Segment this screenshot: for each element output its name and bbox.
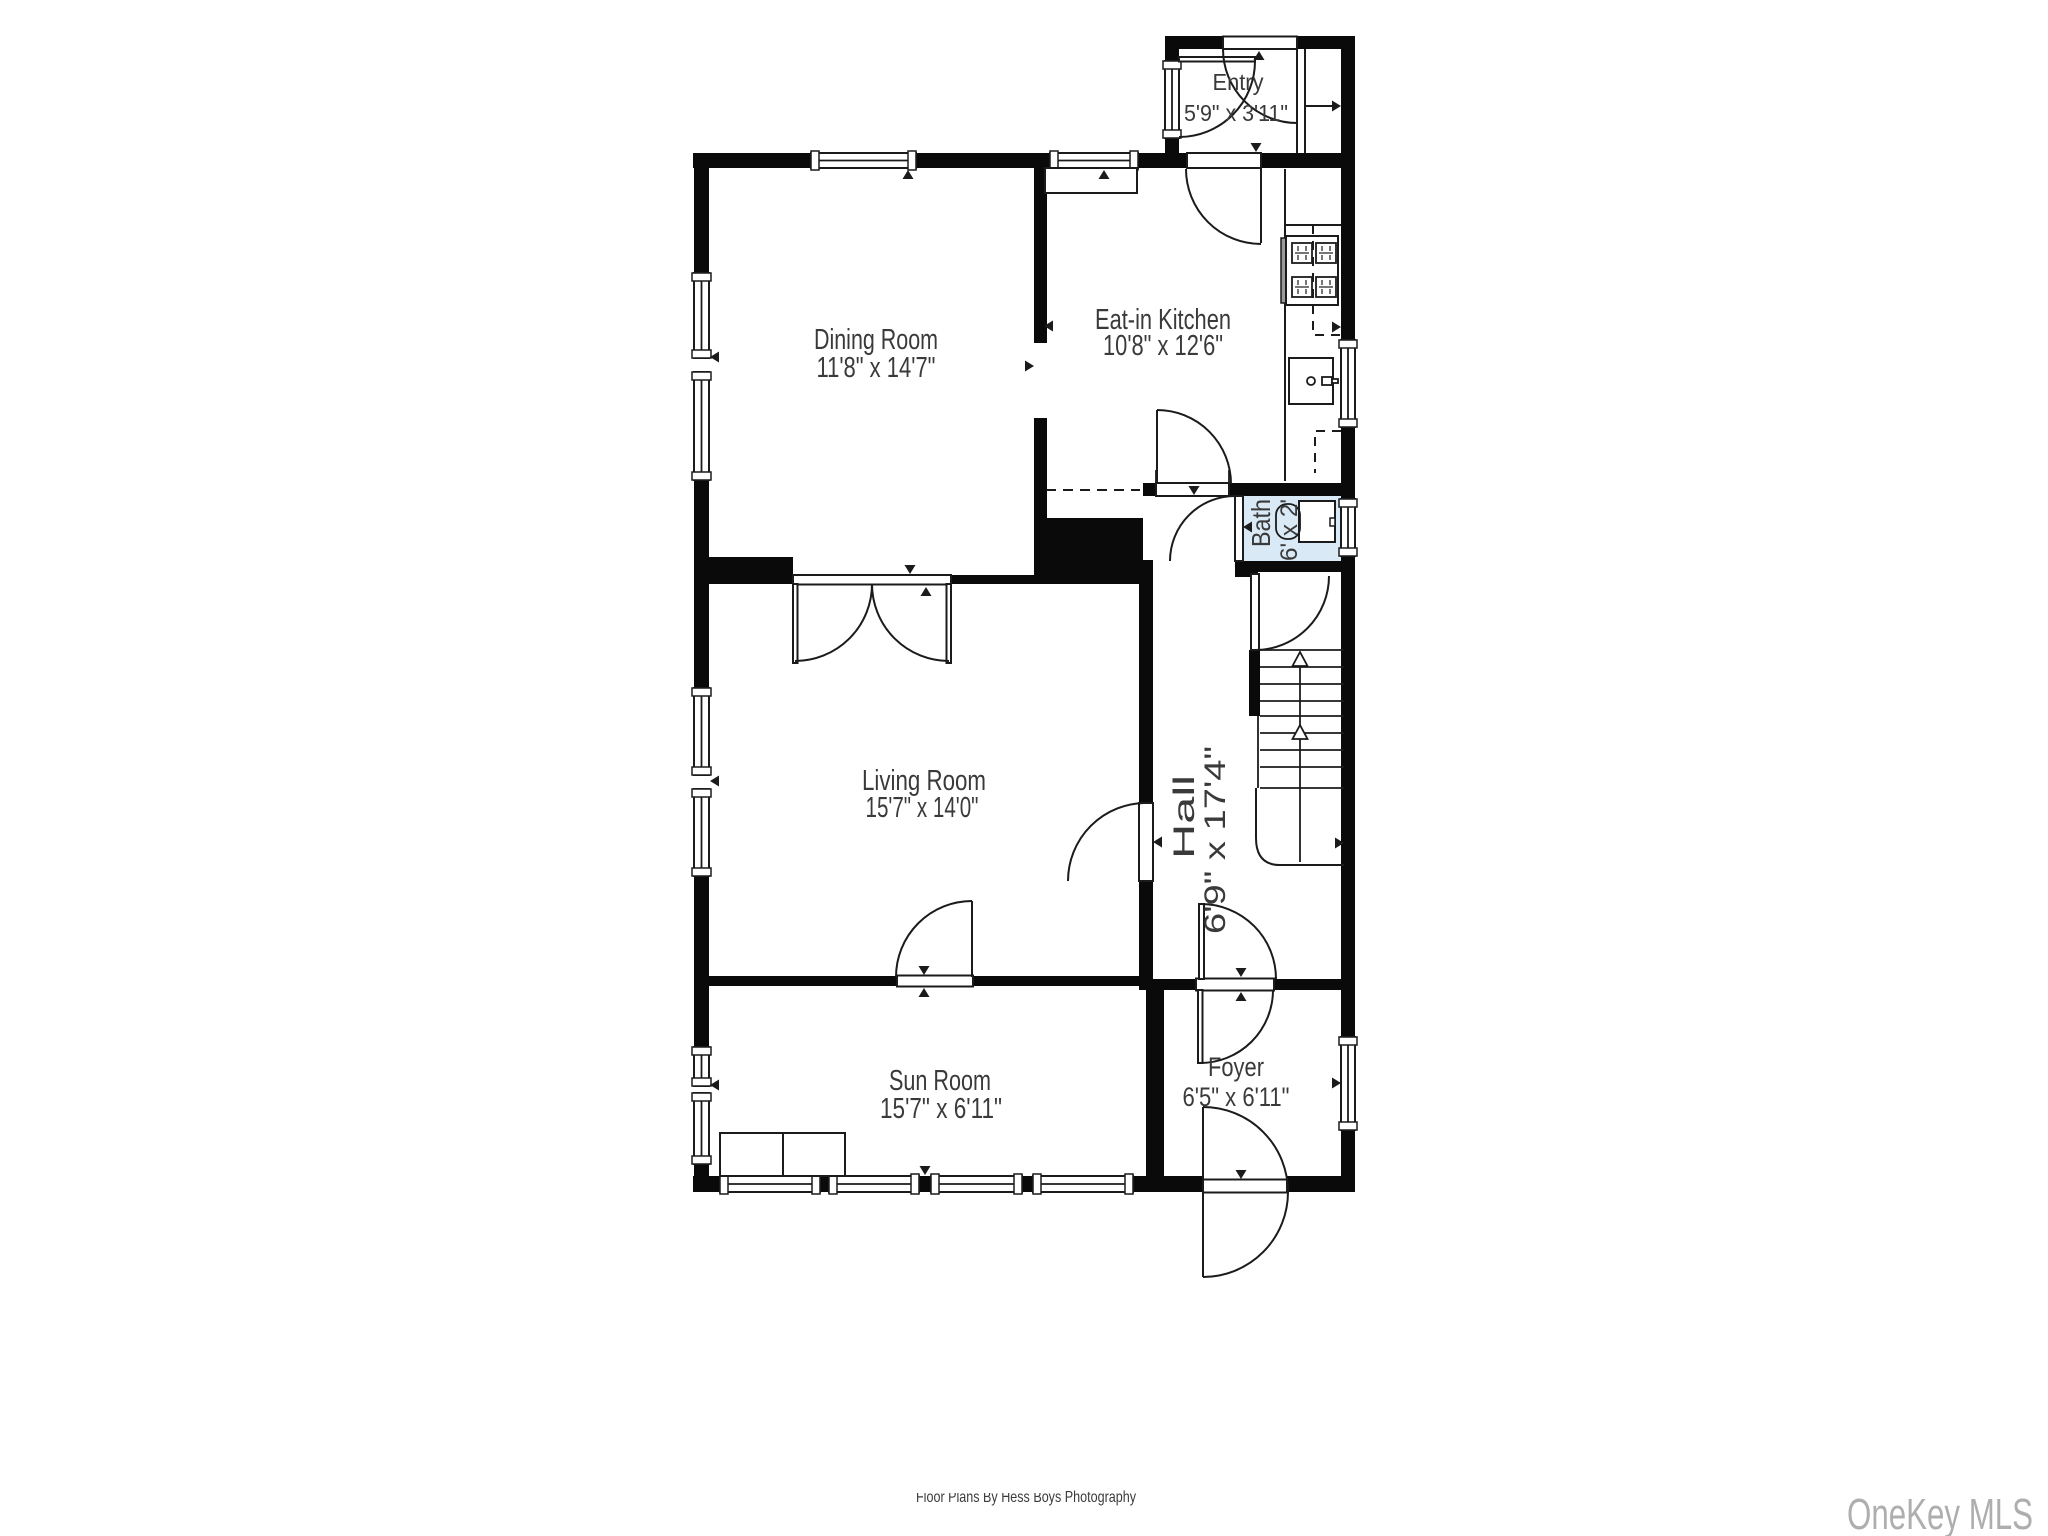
svg-text:Bath: Bath [1246, 499, 1276, 547]
svg-text:Entry: Entry [1213, 69, 1264, 95]
svg-text:15'7" x 14'0": 15'7" x 14'0" [866, 792, 979, 824]
svg-text:Hall: Hall [1168, 775, 1201, 859]
svg-text:6'5" x 6'11": 6'5" x 6'11" [1183, 1082, 1290, 1112]
svg-text:6'9" x 17'4": 6'9" x 17'4" [1199, 746, 1232, 934]
svg-text:OneKey MLS: OneKey MLS [1847, 1490, 2033, 1536]
svg-text:11'8" x 14'7": 11'8" x 14'7" [817, 352, 936, 384]
svg-text:10'8" x 12'6": 10'8" x 12'6" [1103, 330, 1223, 362]
svg-text:6' x 2': 6' x 2' [1276, 499, 1303, 561]
svg-text:Foyer: Foyer [1208, 1052, 1264, 1082]
svg-text:5'9" x 3'11": 5'9" x 3'11" [1184, 100, 1288, 126]
svg-text:15'7" x 6'11": 15'7" x 6'11" [880, 1093, 1002, 1125]
